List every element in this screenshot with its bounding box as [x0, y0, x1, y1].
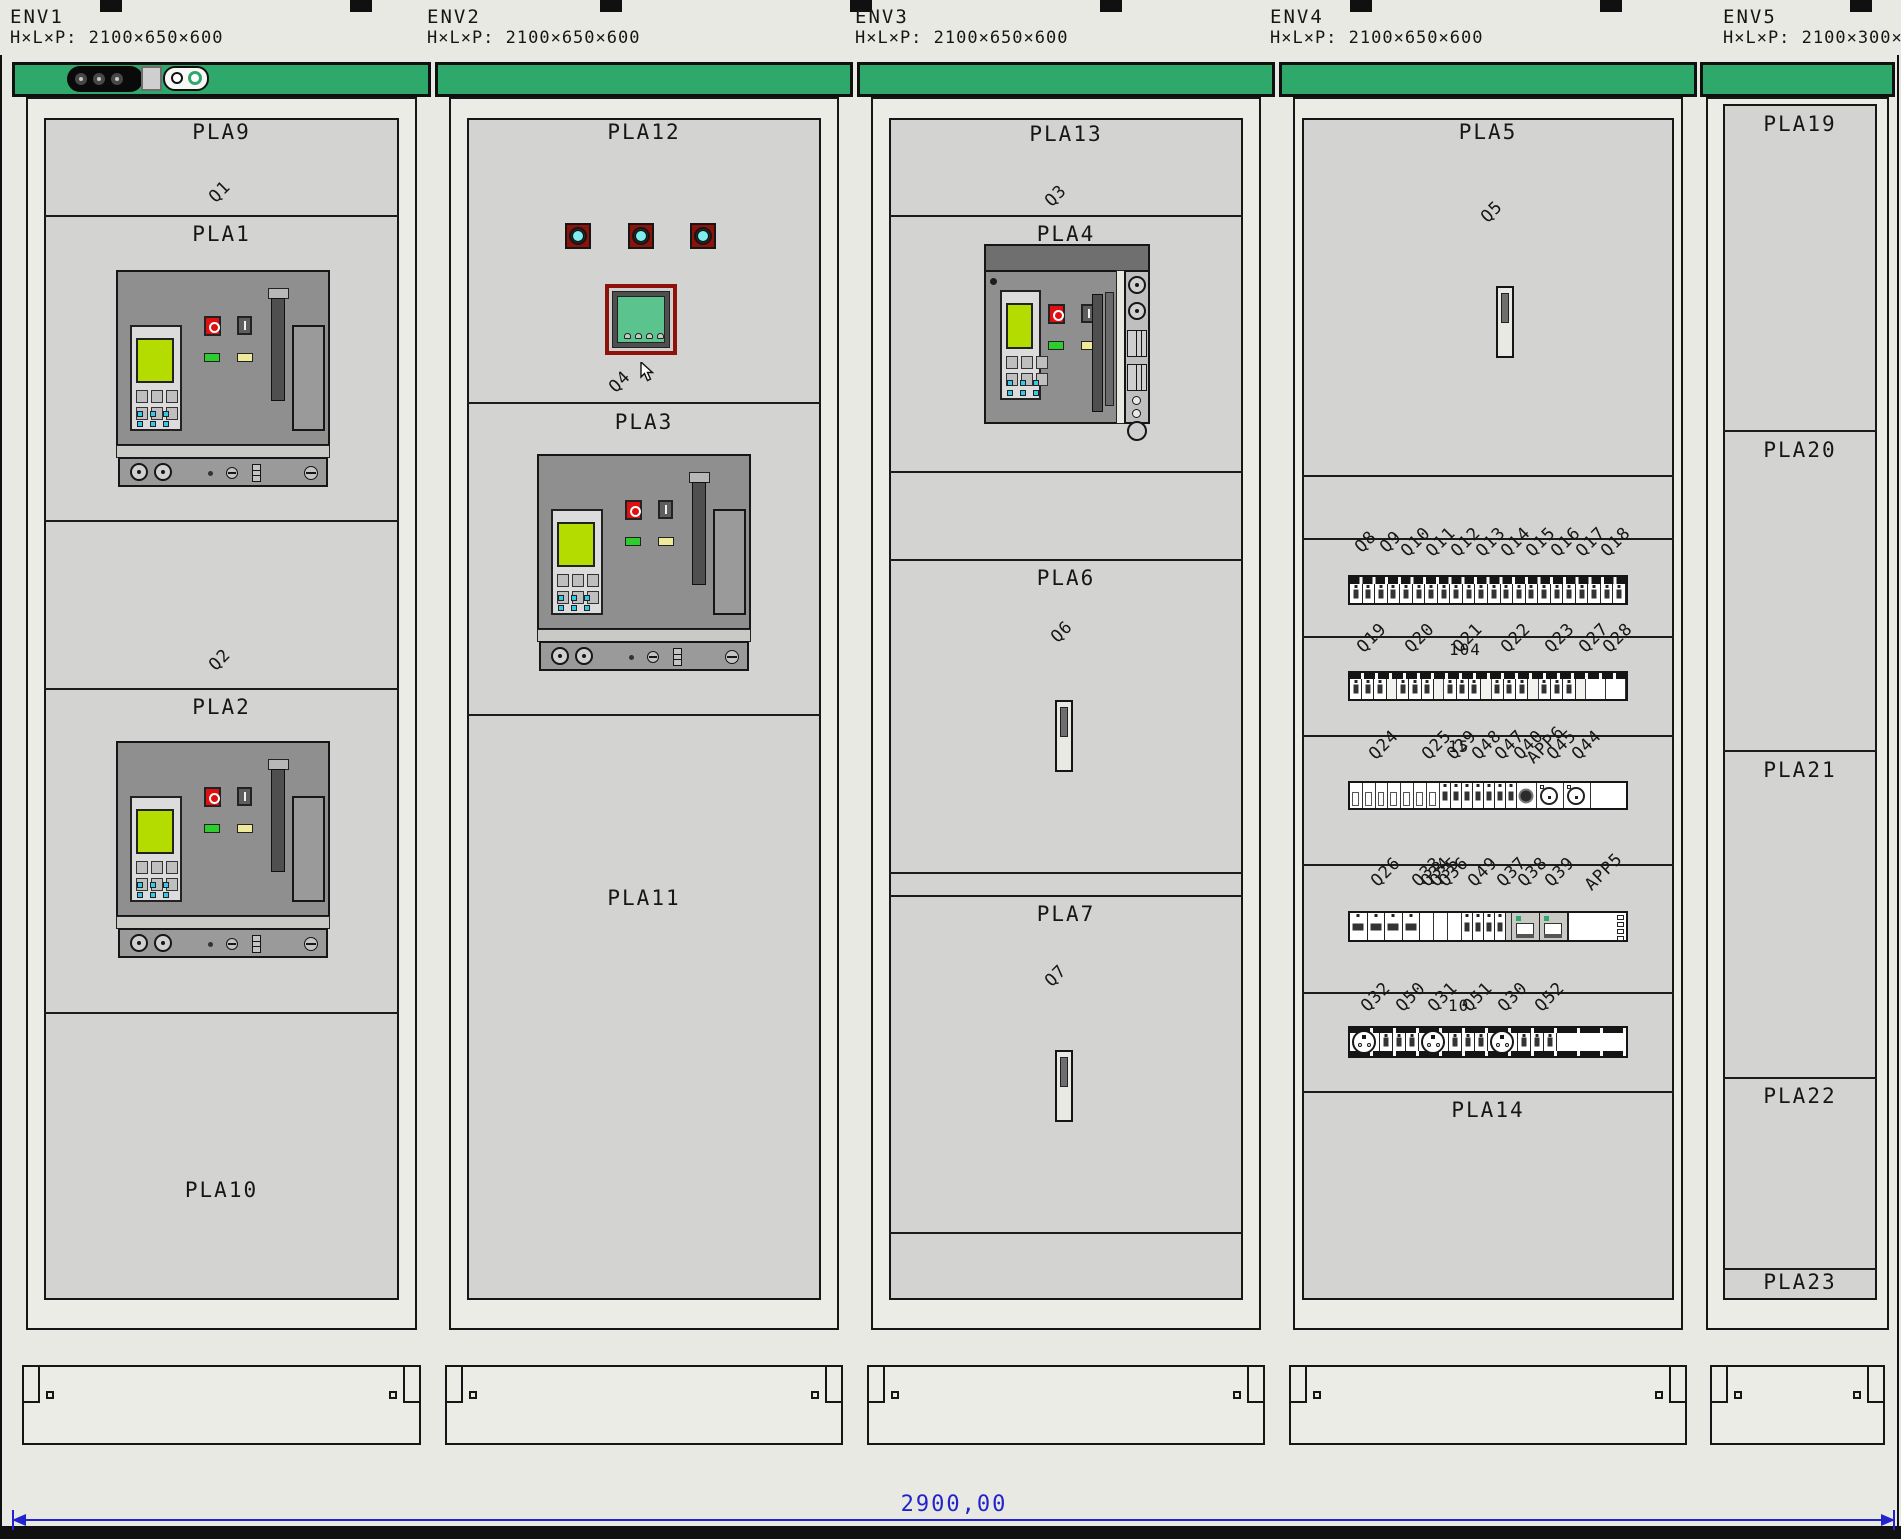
pilot-light-lens[interactable] [697, 230, 709, 242]
terminal-led [1033, 390, 1039, 396]
blank-module [1557, 1033, 1626, 1051]
switch-handle[interactable] [1496, 286, 1514, 358]
panel-label: PLA12 [467, 120, 821, 144]
socket-hole [1505, 1043, 1509, 1047]
socket-hole [1436, 1043, 1440, 1047]
breaker-row-note: 15 [1448, 737, 1469, 756]
mini-breaker[interactable] [1551, 584, 1564, 603]
terminal-mark [1367, 585, 1370, 588]
close-button[interactable] [237, 316, 252, 335]
trip-unit-button[interactable] [557, 574, 569, 587]
mini-breaker[interactable] [1513, 584, 1526, 603]
mini-breaker[interactable] [1425, 584, 1438, 603]
latch-circle-icon[interactable] [171, 72, 183, 84]
terminal-led [1020, 380, 1026, 386]
mini-breaker[interactable] [1444, 679, 1456, 699]
panel-divider-line [467, 714, 821, 716]
env4-top-cover [1279, 62, 1697, 97]
cad-drawing-canvas: ENV1 H×L×P: 2100×650×600 ENV2 H×L×P: 210… [0, 0, 1901, 1539]
screw-icon [226, 467, 238, 479]
latch-circle-green-icon[interactable] [188, 71, 202, 85]
mini-breaker[interactable] [1362, 679, 1374, 699]
mini-breaker[interactable] [1400, 584, 1413, 603]
terminal-mark [1454, 1034, 1457, 1037]
breaker-toggle [1522, 1038, 1527, 1047]
terminal-mark [1473, 680, 1476, 683]
panel-divider-line [44, 1012, 399, 1014]
mini-breaker[interactable] [1368, 913, 1386, 940]
module-cover [1352, 792, 1359, 806]
breaker-toggle [1442, 791, 1447, 800]
blank-module [1427, 783, 1440, 808]
mini-breaker[interactable] [1526, 584, 1539, 603]
plinth-corner-step [825, 1367, 827, 1403]
mini-breaker[interactable] [1397, 679, 1409, 699]
panel-divider-line [1723, 430, 1877, 432]
mini-breaker[interactable] [1363, 584, 1376, 603]
open-button[interactable] [1048, 304, 1065, 324]
frame-tick [1100, 0, 1122, 12]
terminal-mark [1366, 680, 1369, 683]
terminal-mark [1536, 1034, 1539, 1037]
racking-port-dot [161, 470, 165, 474]
mini-breaker[interactable] [1504, 679, 1516, 699]
plinth-corner-step [447, 1401, 463, 1403]
charging-handle-slot[interactable] [692, 482, 706, 585]
terminal-mark [1618, 585, 1621, 588]
racking-port[interactable] [575, 647, 593, 665]
terminal-mark [1549, 1034, 1552, 1037]
panel-label: PLA22 [1723, 1084, 1877, 1108]
panel-divider-line [1302, 475, 1674, 477]
breaker-toggle [1448, 685, 1453, 694]
terminal-band [1350, 1051, 1626, 1056]
panel-divider-line [889, 215, 1243, 217]
module-cover [1403, 792, 1410, 806]
trip-unit-screen [136, 809, 174, 854]
status-led-green [204, 824, 220, 833]
racking-port[interactable] [130, 463, 148, 481]
knob-icon [1519, 788, 1534, 803]
terminal-mark [1496, 680, 1499, 683]
terminal-led [1007, 380, 1013, 386]
breaker-toggle [1516, 589, 1521, 598]
terminal-mark [1509, 784, 1512, 787]
control-knob[interactable] [1517, 783, 1537, 808]
mini-breaker[interactable] [1393, 1033, 1406, 1051]
trip-unit-button[interactable] [151, 390, 163, 403]
module-mark [1540, 785, 1544, 789]
mini-breaker[interactable] [1495, 913, 1506, 940]
terminal-mark [1443, 784, 1446, 787]
plinth-corner-step [24, 1401, 40, 1403]
plinth-corner-step [1867, 1401, 1883, 1403]
terminal-led [163, 421, 169, 427]
socket-face-icon [1352, 1030, 1376, 1054]
terminal-mark [1379, 585, 1382, 588]
panel-divider-line [889, 559, 1243, 561]
mini-breaker[interactable] [1506, 783, 1517, 808]
blank-module [1363, 783, 1376, 808]
close-button-bar-icon [665, 505, 667, 514]
env4-mounting-panel [1302, 118, 1674, 1300]
mark [253, 946, 260, 947]
breaker-toggle [1617, 589, 1622, 598]
power-meter[interactable] [605, 284, 677, 355]
mini-breaker[interactable] [1484, 783, 1495, 808]
racking-port[interactable] [154, 934, 172, 952]
breaker-toggle [1465, 922, 1470, 931]
env4-header: ENV4 H×L×P: 2100×650×600 [1270, 6, 1483, 48]
mini-breaker[interactable] [1518, 1033, 1531, 1051]
mini-breaker[interactable] [1551, 679, 1563, 699]
terminal-mark [1455, 585, 1458, 588]
panel-divider-line [889, 872, 1243, 874]
charging-handle-slot[interactable] [271, 769, 285, 872]
blank-module [1376, 783, 1389, 808]
mini-breaker[interactable] [1544, 1033, 1557, 1051]
open-button-ring-icon [630, 506, 641, 517]
dial-dot [1548, 796, 1551, 799]
switch-handle[interactable] [1055, 700, 1073, 772]
trip-unit-button[interactable] [166, 390, 178, 403]
mini-breaker[interactable] [1385, 913, 1403, 940]
plinth-corner-step [1247, 1401, 1263, 1403]
mini-breaker[interactable] [1588, 584, 1601, 603]
mini-breaker[interactable] [1473, 783, 1484, 808]
mini-breaker[interactable] [1501, 584, 1514, 603]
mini-breaker[interactable] [1462, 1033, 1475, 1051]
meter-button[interactable] [646, 333, 653, 339]
mini-breaker[interactable] [1462, 783, 1473, 808]
frame-tick [350, 0, 372, 12]
trip-unit-button[interactable] [1021, 356, 1033, 369]
plinth-corner-step [1712, 1401, 1728, 1403]
breaker-top-band [984, 244, 1150, 272]
panel-divider-line [889, 895, 1243, 897]
spring-indicator [252, 935, 261, 953]
trip-unit-button[interactable] [1036, 356, 1048, 369]
din-row [1350, 584, 1626, 603]
pilot-light-lens[interactable] [635, 230, 647, 242]
screw-icon [647, 651, 659, 663]
breaker-toggle [1464, 791, 1469, 800]
screw-slot [228, 943, 236, 945]
breaker-toggle [1366, 589, 1371, 598]
pilot-light-lens[interactable] [572, 230, 584, 242]
mini-breaker[interactable] [1462, 913, 1473, 940]
panel-divider-line [44, 520, 399, 522]
env3-header: ENV3 H×L×P: 2100×650×600 [855, 6, 1068, 48]
breaker-toggle [1400, 685, 1405, 694]
racking-port[interactable] [154, 463, 172, 481]
breaker-toggle [1403, 589, 1408, 598]
terminal-led [571, 595, 577, 601]
mini-breaker[interactable] [1516, 679, 1528, 699]
trip-unit-button[interactable] [151, 861, 163, 874]
breaker-toggle [1497, 791, 1502, 800]
breaker-toggle [1542, 685, 1547, 694]
air-circuit-breaker[interactable] [116, 270, 330, 487]
panel-label: PLA7 [889, 902, 1243, 926]
accessory-port [1128, 302, 1146, 320]
breaker-toggle [1466, 589, 1471, 598]
terminal-mark [1454, 784, 1457, 787]
terminal-mark [1567, 680, 1570, 683]
breaker-row-note: 104 [1449, 640, 1481, 659]
mini-breaker[interactable] [1440, 783, 1451, 808]
screw-slot [727, 656, 737, 658]
env3-plinth [867, 1365, 1265, 1445]
surge-protector[interactable] [1540, 913, 1568, 940]
breaker-toggle [1548, 1038, 1553, 1047]
terminal-mark [1357, 914, 1360, 917]
status-window-green [1544, 916, 1549, 921]
breaker-toggle [1567, 589, 1572, 598]
meter-button[interactable] [657, 333, 664, 339]
socket-outlet[interactable] [1419, 1033, 1449, 1051]
open-button[interactable] [204, 787, 221, 807]
mini-breaker[interactable] [1438, 584, 1451, 603]
blank-module [1448, 913, 1462, 940]
surge-base [1516, 934, 1534, 938]
mini-breaker[interactable] [1449, 1033, 1462, 1051]
terminal-mark [1392, 585, 1395, 588]
breaker-toggle [1491, 589, 1496, 598]
env3-top-cover [857, 62, 1275, 97]
earth-pin [1431, 1035, 1435, 1039]
indicator-dot [208, 471, 213, 476]
terminal-led [163, 892, 169, 898]
trip-unit-display [1000, 290, 1041, 400]
breaker-toggle [1425, 685, 1430, 694]
trip-unit-button[interactable] [572, 574, 584, 587]
mini-breaker[interactable] [1350, 679, 1362, 699]
env5-name: ENV5 [1723, 6, 1901, 28]
din-rail-strip [1348, 781, 1628, 810]
terminal-block [1617, 936, 1624, 941]
mini-breaker[interactable] [1484, 913, 1495, 940]
mini-breaker[interactable] [1450, 584, 1463, 603]
terminal-mark [1487, 784, 1490, 787]
env1-latch-group [67, 66, 208, 92]
mini-breaker[interactable] [1350, 913, 1368, 940]
module-cover [1378, 792, 1385, 806]
close-button-bar-icon [244, 321, 246, 330]
charging-handle-slot[interactable] [271, 298, 285, 401]
panel-label: PLA13 [889, 122, 1243, 146]
trip-unit-button[interactable] [136, 861, 148, 874]
meter-button[interactable] [624, 333, 631, 339]
mini-breaker[interactable] [1463, 584, 1476, 603]
spring-indicator [673, 648, 682, 666]
mini-breaker[interactable] [1563, 679, 1575, 699]
mini-breaker[interactable] [1406, 1033, 1419, 1051]
panel-label: PLA9 [44, 120, 399, 144]
socket-outlet[interactable] [1350, 1033, 1380, 1051]
terminal-mark [1461, 680, 1464, 683]
mini-breaker[interactable] [1403, 913, 1421, 940]
socket-outlet[interactable] [1488, 1033, 1518, 1051]
terminal-mark [1476, 784, 1479, 787]
env2-plinth [445, 1365, 843, 1445]
plinth-screw [389, 1391, 397, 1399]
din-row [1350, 679, 1626, 699]
terminal-led [163, 882, 169, 888]
env3-dimensions: H×L×P: 2100×650×600 [855, 28, 1068, 48]
racking-port[interactable] [551, 647, 569, 665]
terminal-mark [1392, 914, 1395, 917]
controller-module[interactable] [1568, 913, 1626, 940]
pilot-light [565, 223, 591, 249]
mini-breaker[interactable] [1380, 1033, 1393, 1051]
breaker-toggle [1370, 923, 1381, 930]
mini-breaker[interactable] [1563, 584, 1576, 603]
screw-slot [306, 943, 316, 945]
panel-label: PLA5 [1302, 120, 1674, 144]
air-circuit-breaker[interactable] [537, 454, 751, 671]
breaker-toggle [1476, 922, 1481, 931]
plinth-corner-step [1305, 1367, 1307, 1403]
panel-label: PLA19 [1723, 112, 1877, 136]
plinth-screw [1655, 1391, 1663, 1399]
breaker-toggle [1479, 1038, 1484, 1047]
mini-breaker[interactable] [1613, 584, 1626, 603]
surge-protector[interactable] [1512, 913, 1540, 940]
breaker-toggle [1529, 589, 1534, 598]
port-dot [1135, 309, 1139, 313]
racking-port-dot [161, 941, 165, 945]
latch-dot [97, 77, 101, 81]
status-led-yellow [237, 353, 253, 362]
mini-breaker[interactable] [1422, 679, 1434, 699]
mini-breaker[interactable] [1531, 1033, 1544, 1051]
overall-width-dimension: 2900,00 [854, 1492, 1054, 1517]
racking-port[interactable] [130, 934, 148, 952]
latch-square-key[interactable] [141, 66, 162, 91]
panel-label: PLA21 [1723, 758, 1877, 782]
mini-breaker[interactable] [1457, 679, 1469, 699]
mini-breaker[interactable] [1475, 1033, 1488, 1051]
close-button[interactable] [658, 500, 673, 519]
env2-name: ENV2 [427, 6, 640, 28]
terminal-mark [1426, 680, 1429, 683]
breaker-toggle [1378, 589, 1383, 598]
breaker-toggle [1604, 589, 1609, 598]
terminal-led [137, 882, 143, 888]
switch-handle-lever [1060, 707, 1068, 737]
withdrawable-breaker[interactable] [984, 244, 1150, 424]
terminal-led [558, 595, 564, 601]
terminal-mark [1467, 1034, 1470, 1037]
env1-dimensions: H×L×P: 2100×650×600 [10, 28, 223, 48]
fuse-line [1141, 365, 1142, 390]
trip-unit-button[interactable] [587, 574, 599, 587]
env3-name: ENV3 [855, 6, 1068, 28]
breaker-toggle [1479, 589, 1484, 598]
panel-label: PLA11 [467, 886, 821, 910]
env1-name: ENV1 [10, 6, 223, 28]
breaker-toggle [1397, 1038, 1402, 1047]
mini-breaker[interactable] [1492, 679, 1504, 699]
terminal-mark [1508, 680, 1511, 683]
env1-plinth [22, 1365, 421, 1445]
mini-breaker[interactable] [1473, 913, 1484, 940]
switch-handle[interactable] [1055, 1050, 1073, 1122]
breaker-toggle [1466, 1038, 1471, 1047]
fuse-module [1127, 330, 1147, 357]
mini-breaker[interactable] [1539, 679, 1551, 699]
breaker-toggle [1365, 685, 1370, 694]
mini-breaker[interactable] [1469, 679, 1481, 699]
mini-breaker[interactable] [1451, 783, 1462, 808]
frame-left-border [0, 55, 2, 1539]
module-cover [1416, 792, 1423, 806]
terminal-mark [1605, 585, 1608, 588]
trip-unit-button[interactable] [1006, 356, 1018, 369]
rail-gap [1387, 679, 1398, 699]
breaker-toggle [1416, 589, 1421, 598]
meter-button[interactable] [635, 333, 642, 339]
open-button[interactable] [204, 316, 221, 336]
terminal-mark [1568, 585, 1571, 588]
breaker-toggle [1519, 685, 1524, 694]
status-led-green [204, 353, 220, 362]
terminal-mark [1523, 1034, 1526, 1037]
panel-divider-line [889, 471, 1243, 473]
terminal-mark [1414, 680, 1417, 683]
status-led-green [1048, 341, 1064, 350]
mini-breaker[interactable] [1475, 584, 1488, 603]
mini-breaker[interactable] [1495, 783, 1506, 808]
breaker-toggle [1566, 685, 1571, 694]
breaker-toggle [1378, 685, 1383, 694]
meter-module [1564, 783, 1591, 808]
close-button[interactable] [237, 787, 252, 806]
trip-unit-screen [136, 338, 174, 383]
mini-breaker[interactable] [1488, 584, 1501, 603]
terminal-mark [1580, 585, 1583, 588]
mini-breaker[interactable] [1409, 679, 1421, 699]
mini-breaker[interactable] [1350, 584, 1363, 603]
breaker-toggle [1391, 589, 1396, 598]
panel-divider-line [1723, 750, 1877, 752]
trip-unit-button[interactable] [166, 861, 178, 874]
mini-breaker[interactable] [1601, 584, 1614, 603]
racking-strip [118, 457, 328, 487]
mini-breaker[interactable] [1413, 584, 1426, 603]
air-circuit-breaker[interactable] [116, 741, 330, 958]
open-button[interactable] [625, 500, 642, 520]
mini-breaker[interactable] [1388, 584, 1401, 603]
mini-breaker[interactable] [1374, 679, 1386, 699]
din-rail-strip [1348, 1026, 1628, 1058]
terminal-mark [1398, 1034, 1401, 1037]
breaker-toggle [1384, 1038, 1389, 1047]
dimension-line [12, 1519, 1895, 1521]
mini-breaker[interactable] [1538, 584, 1551, 603]
mini-breaker[interactable] [1375, 584, 1388, 603]
terminal-mark [1354, 680, 1357, 683]
mini-breaker[interactable] [1576, 584, 1589, 603]
panel-label: PLA3 [467, 410, 821, 434]
terminal-mark [1411, 1034, 1414, 1037]
plinth-screw [1734, 1391, 1742, 1399]
racking-strip [539, 641, 749, 671]
trip-unit-button[interactable] [136, 390, 148, 403]
handle-slot[interactable] [1092, 294, 1103, 412]
rail-gap [1528, 679, 1539, 699]
